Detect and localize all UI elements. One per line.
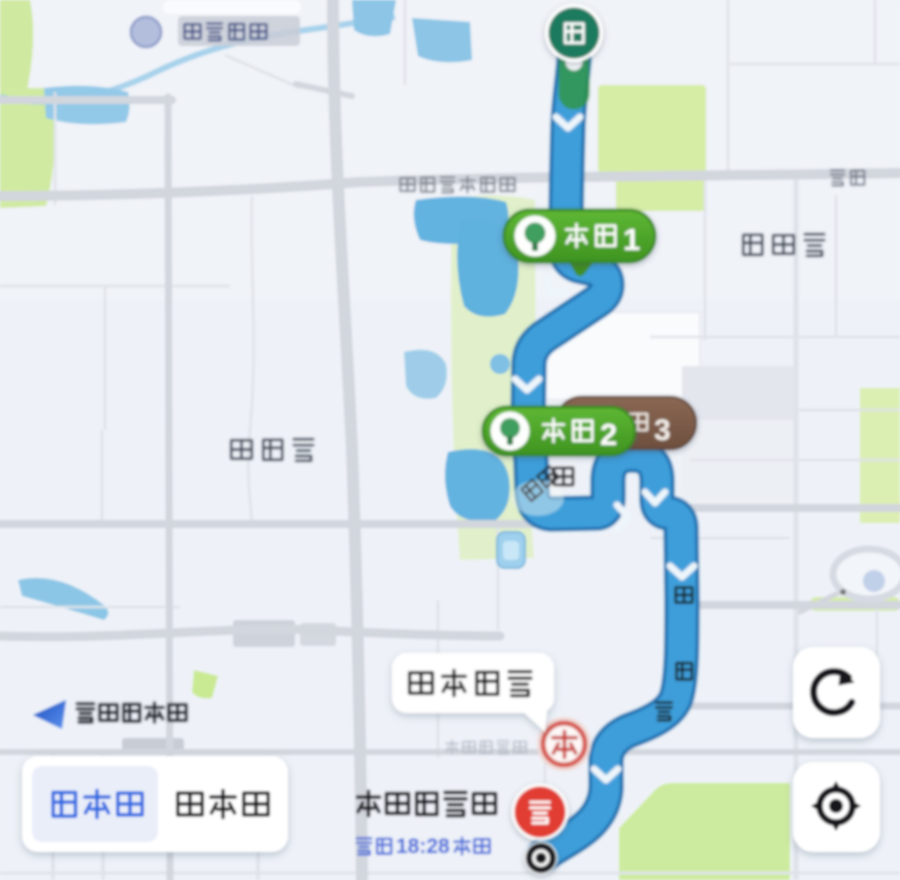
svg-text:2: 2 xyxy=(600,417,617,452)
svg-text:1: 1 xyxy=(623,222,640,257)
svg-text:18:28: 18:28 xyxy=(396,835,450,858)
svg-text:3: 3 xyxy=(654,414,671,447)
